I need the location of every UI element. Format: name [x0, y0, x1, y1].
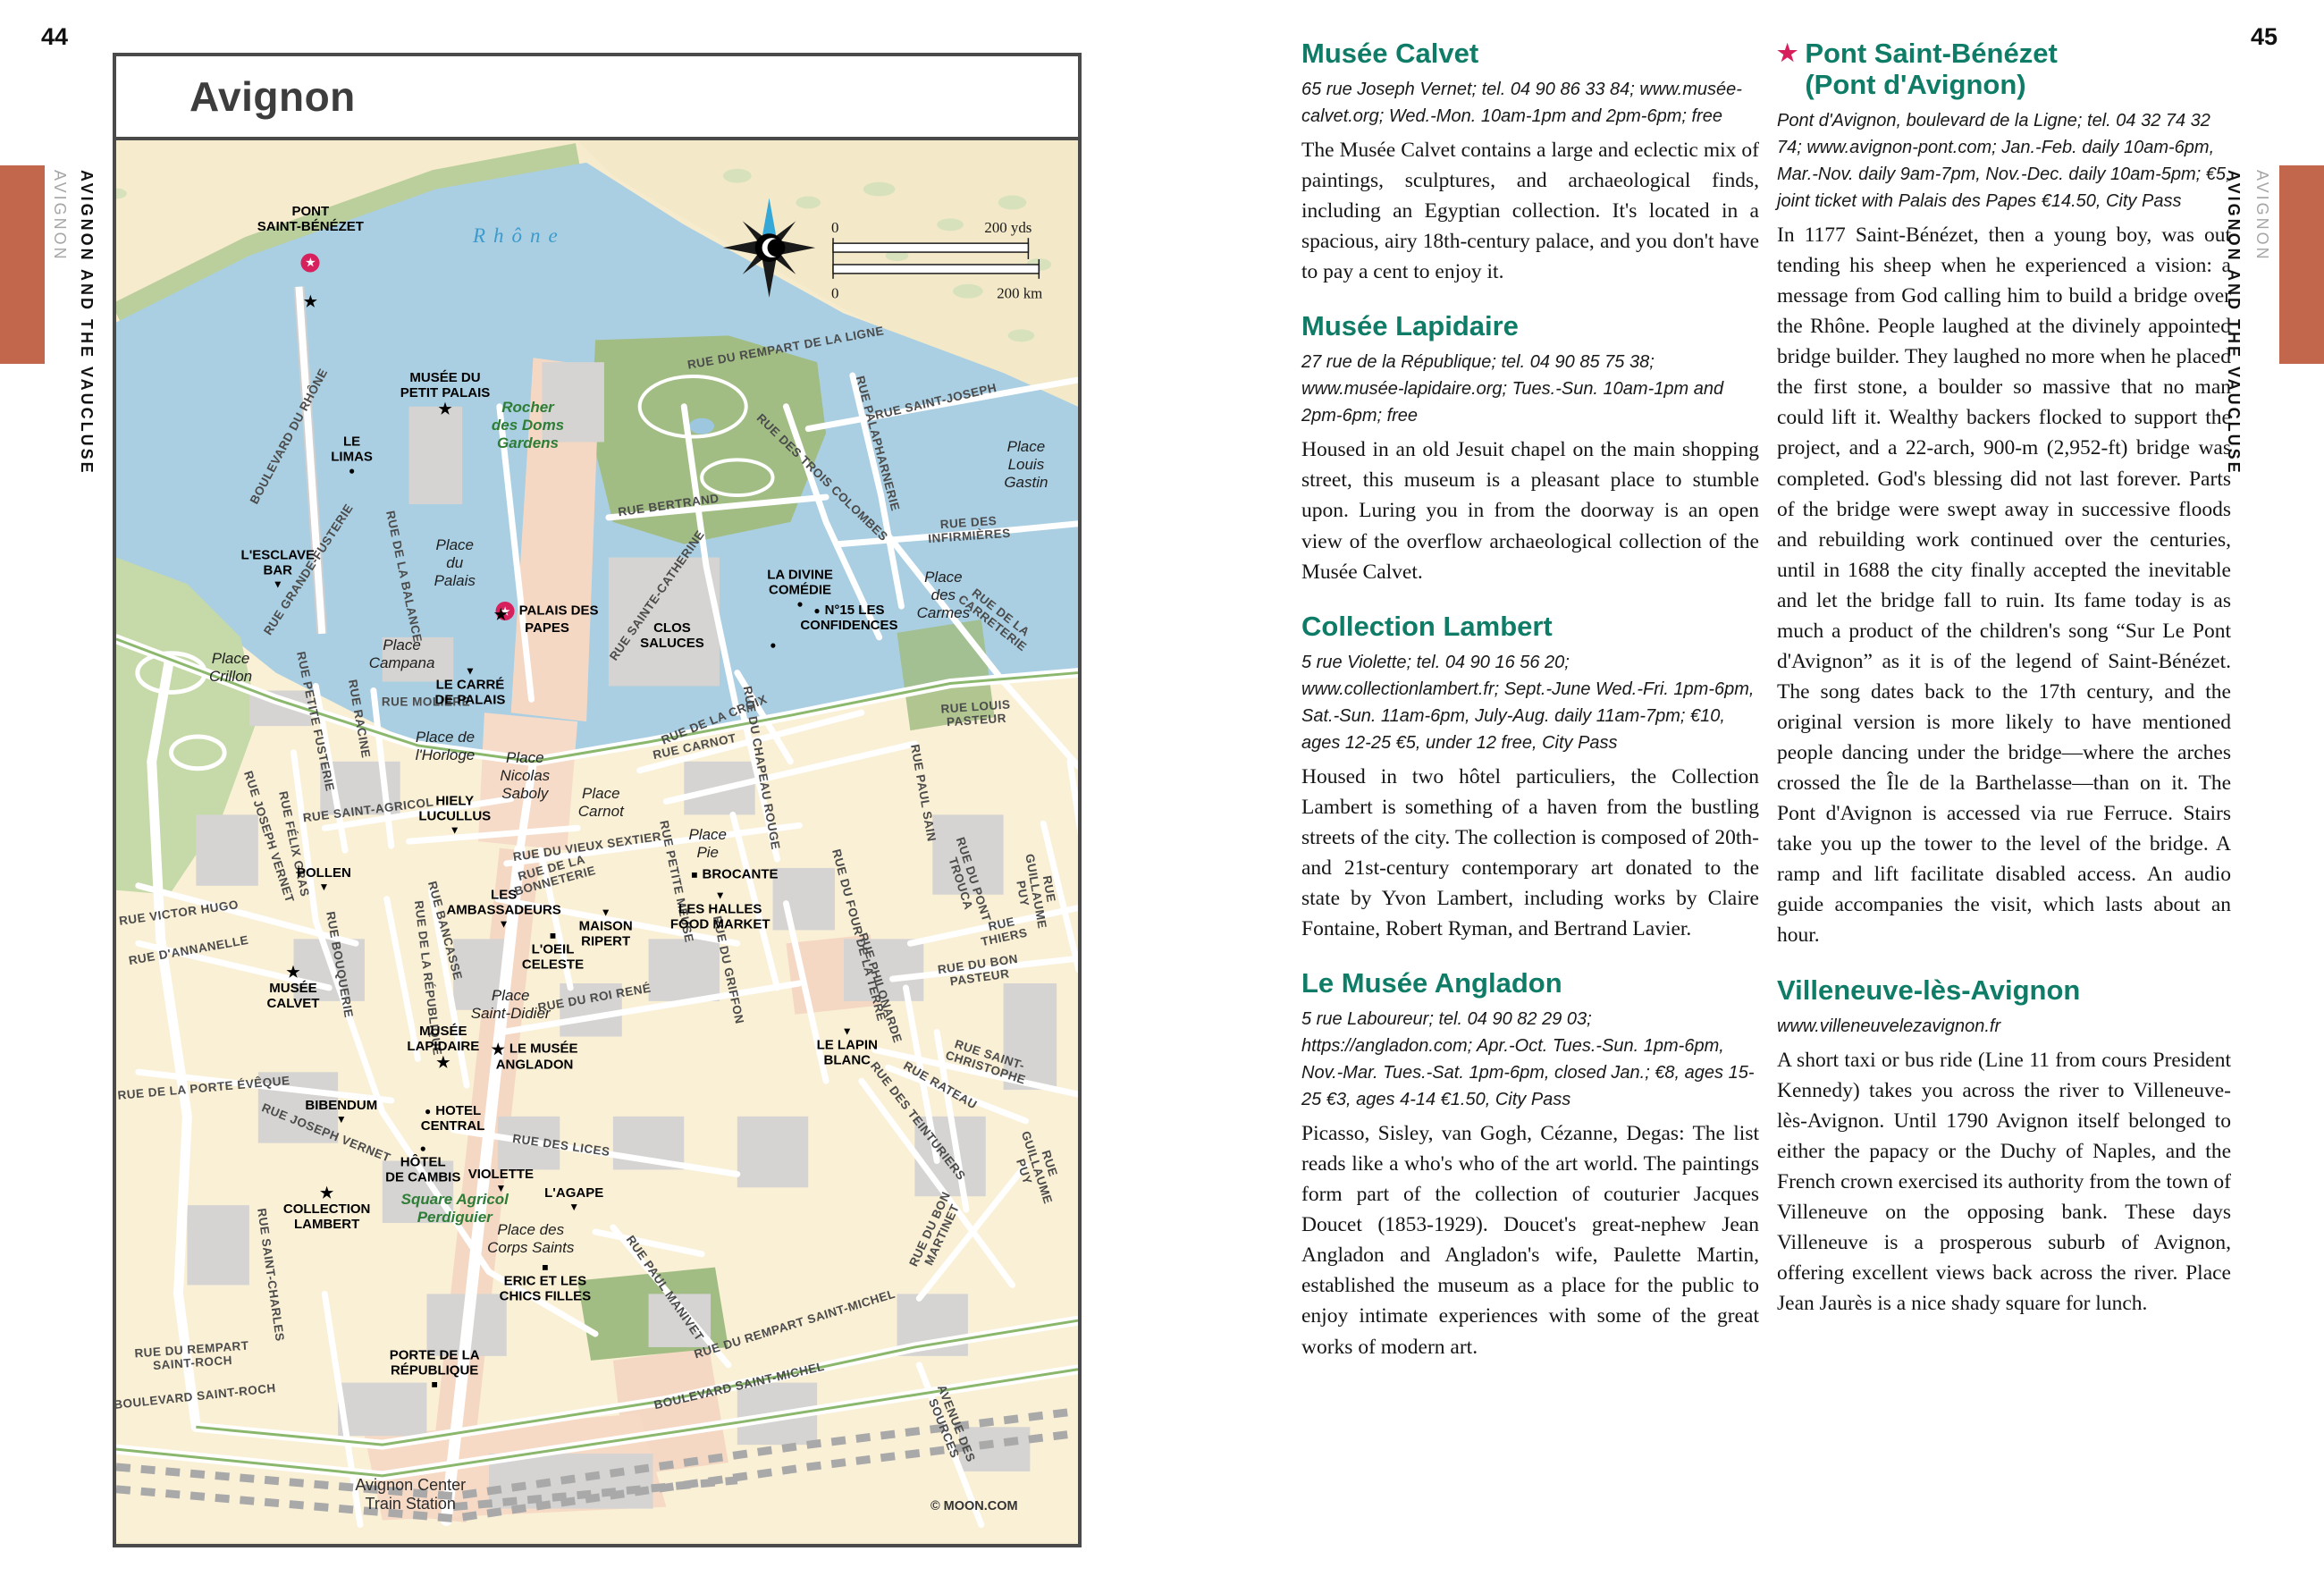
map-label-place: Place Crillon	[209, 650, 252, 686]
map-label-place: Place des Corps Saints	[487, 1221, 574, 1257]
article-title: Musée Lapidaire	[1301, 310, 1519, 341]
article-info-line: www.villeneuvelezavignon.fr	[1777, 1013, 2231, 1040]
map-label-poi: VIOLETTE▼	[468, 1167, 534, 1193]
map-marker: ★	[301, 253, 320, 272]
tri-marker-icon: ▼	[544, 1201, 603, 1212]
map-label-place: Place Saint-Didier	[471, 987, 551, 1023]
book-spread: 44 45 AVIGNON AVIGNON AND THE VAUCLUSE A…	[0, 0, 2324, 1585]
map-label-street: RUE BOUQUERIE	[324, 910, 356, 1018]
map-label-street: RUE PETITE FUSTERIE	[294, 650, 337, 792]
star-marker-icon: ★	[304, 294, 317, 309]
map-label-street: RUE DE LA BALANCE	[383, 510, 425, 644]
map-label-poi: L'AGAPE▼	[544, 1185, 603, 1212]
map-label-street: RUE PAUL MANIVET	[624, 1233, 707, 1344]
tri-marker-icon: ▼	[297, 881, 351, 892]
dot-marker-icon: ●	[770, 639, 776, 650]
tri-marker-icon: ▼	[418, 824, 491, 835]
article-body: Housed in an old Jesuit chapel on the ma…	[1301, 434, 1759, 586]
article-heading: ★ Villeneuve-lès-Avignon	[1777, 974, 2231, 1006]
map-marker: ★	[304, 294, 317, 310]
map-marker: ●	[770, 637, 776, 652]
map-label-place: Place Louis Gastin	[1004, 438, 1048, 492]
map-label-station: Avignon Center Train Station	[355, 1476, 466, 1513]
map-label-poi: ▼LE CARRÉ DE PALAIS	[435, 665, 506, 707]
map-label-street: RUE DU ROI RENÉ	[536, 982, 652, 1015]
map-label-poi: ■ERIC ET LES CHICS FILLES	[500, 1261, 592, 1303]
article-body: The Musée Calvet contains a large and ec…	[1301, 135, 1759, 287]
top-sight-star-icon: ★	[301, 253, 320, 272]
tri-marker-icon: ▼	[468, 1183, 534, 1193]
sidebar-subtitle-right: AVIGNON	[2252, 170, 2271, 262]
article-info-line: 5 rue Laboureur; tel. 04 90 82 29 03; ht…	[1301, 1006, 1759, 1113]
article-section: ★ Musée Lapidaire 27 rue de la Républiqu…	[1301, 310, 1759, 586]
map-label-poi: ●HÔTEL DE CAMBIS	[385, 1142, 460, 1185]
sq-marker-icon: ■	[500, 1261, 592, 1272]
dot-marker-icon: ●	[425, 1106, 431, 1117]
sq-marker-icon: ■	[390, 1378, 480, 1389]
article-section: ★ Pont Saint-Bénézet (Pont d'Avignon) Po…	[1777, 38, 2231, 951]
star-marker-icon: ★	[283, 1185, 371, 1201]
chapter-tab-right	[2279, 165, 2324, 364]
tri-marker-icon: ▼	[241, 578, 315, 589]
map-label-street: RUE RACINE	[346, 679, 373, 759]
tri-marker-icon: ▼	[817, 1026, 878, 1037]
map-label-poi: LES AMBASSADEURS▼	[446, 887, 560, 929]
map-label-poi: PONT SAINT-BÉNÉZET	[257, 204, 364, 234]
map-label-poi: ▼MAISON RIPERT	[579, 906, 633, 948]
map-label-street: RUE SAINT-CHRISTOPHE	[940, 1034, 1034, 1088]
map-label-poi: ▼LES HALLES FOOD MARKET	[670, 889, 770, 932]
star-marker-icon: ★	[267, 965, 320, 980]
map-label-place: Place Pie	[688, 826, 727, 862]
map-title: Avignon	[116, 72, 356, 121]
article-info-line: 5 rue Violette; tel. 04 90 16 56 20; www…	[1301, 649, 1759, 756]
map-label-street: RUE BERTRAND	[617, 492, 720, 519]
map-label-street: RUE SAINT-AGRICOL	[302, 795, 434, 824]
star-marker-icon: ★	[407, 1055, 479, 1070]
article-heading: ★ Musée Lapidaire	[1301, 310, 1759, 341]
map-label-street: RUE DES LICES	[512, 1132, 611, 1159]
map-label-street: RUE PAUL SAIN	[908, 743, 939, 842]
article-body: A short taxi or bus ride (Line 11 from c…	[1777, 1045, 2231, 1319]
map-label-street: RUE VICTOR HUGO	[118, 898, 240, 928]
article-heading: ★ Collection Lambert	[1301, 611, 1759, 642]
map-label-place: Place du Palais	[434, 536, 476, 590]
map-label-poi: ★COLLECTION LAMBERT	[283, 1185, 371, 1232]
article-section: ★ Le Musée Angladon 5 rue Laboureur; tel…	[1301, 967, 1759, 1362]
map-label-place: Place Campana	[369, 637, 435, 672]
sidebar-title-left: AVIGNON AND THE VAUCLUSE	[77, 170, 96, 476]
map-label-street: RUE DU REMPART SAINT-ROCH	[134, 1338, 250, 1373]
sidebar-subtitle-left: AVIGNON	[50, 170, 69, 262]
article-section: ★ Collection Lambert 5 rue Violette; tel…	[1301, 611, 1759, 944]
map-label-poi: PORTE DE LA RÉPUBLIQUE■	[390, 1347, 480, 1389]
map-marker: ★	[494, 607, 508, 623]
map-label-street: RUE SAINT-CHARLES	[255, 1207, 287, 1342]
map-label-place: Place des Carmes	[917, 569, 971, 622]
map-label-street: AVENUE DES SOURCES	[914, 1362, 986, 1490]
map-label-place: Place Carnot	[578, 785, 624, 821]
page-number-left: 44	[41, 23, 68, 51]
article-heading: ★ Musée Calvet	[1301, 38, 1759, 69]
article-body: In 1177 Saint-Bénézet, then a young boy,…	[1777, 220, 2231, 951]
article-section: ★ Villeneuve-lès-Avignon www.villeneuvel…	[1777, 974, 2231, 1319]
article-title: Le Musée Angladon	[1301, 967, 1562, 999]
map-label-street: RUE DU BON MARTINET	[894, 1162, 978, 1303]
map-label-street: RUE GUILLAUME PUY	[1006, 1126, 1067, 1210]
map-label-street: RUE DU CHAPEAU ROUGE	[740, 685, 782, 850]
chapter-tab-left	[0, 165, 45, 364]
article-title: Musée Calvet	[1301, 38, 1478, 69]
star-icon: ★	[1777, 40, 1798, 66]
map-label-street: RUE DE LA PORTE ÉVÊQUE	[117, 1074, 290, 1102]
tri-marker-icon: ▼	[305, 1114, 377, 1125]
map-label-poi: MUSÉE LAPIDAIRE★	[407, 1024, 479, 1070]
map-label-poi: ■L'OEIL CELESTE	[522, 931, 584, 973]
map-label-poi: ★LE MUSÉE ANGLADON	[492, 1041, 578, 1073]
map-label-street: RUE D'ANNANELLE	[127, 933, 249, 967]
article-info-line: 27 rue de la République; tel. 04 90 85 7…	[1301, 349, 1759, 429]
map-label-water: Rhône	[473, 224, 566, 248]
map-label-poi: CLOS SALUCES	[640, 620, 704, 651]
dot-marker-icon: ●	[385, 1142, 460, 1153]
map-label-place: Place Nicolas Saboly	[500, 749, 550, 803]
map-label-street: RUE DU REMPART SAINT-MICHEL	[692, 1286, 897, 1361]
tri-marker-icon: ▼	[670, 889, 770, 900]
sq-marker-icon: ■	[522, 931, 584, 941]
dot-marker-icon: ●	[813, 605, 820, 616]
map-label-park: Square Agricol Perdiguier	[401, 1191, 509, 1227]
article-body: Housed in two hôtel particuliers, the Co…	[1301, 762, 1759, 944]
map-canvas: 0 200 yds 0 200 km PONT SAINT-BÉNÉZET★★R…	[116, 140, 1078, 1544]
article-column-2: ★ Pont Saint-Bénézet (Pont d'Avignon) Po…	[1777, 38, 2231, 1342]
map-label-poi: ●N°15 LES CONFIDENCES	[800, 603, 897, 633]
map-label-street: RUE LOUIS PASTEUR	[924, 696, 1028, 730]
map-label-credit: © MOON.COM	[930, 1499, 1018, 1513]
map-label-street: BOULEVARD SAINT-ROCH	[114, 1381, 277, 1412]
article-title: Villeneuve-lès-Avignon	[1777, 974, 2080, 1006]
article-heading: ★ Pont Saint-Bénézet (Pont d'Avignon)	[1777, 38, 2231, 100]
article-column-1: ★ Musée Calvet 65 rue Joseph Vernet; tel…	[1301, 38, 1759, 1386]
article-title: Pont Saint-Bénézet (Pont d'Avignon)	[1805, 38, 2057, 100]
page-number-right: 45	[2251, 23, 2278, 51]
map-label-poi: L'ESCLAVE BAR▼	[241, 547, 315, 589]
map-label-place: Place de l'Horloge	[416, 729, 476, 764]
map-label-street: BOULEVARD DU RHÔNE	[247, 367, 330, 506]
map-label-street: RUE DU BON PASTEUR	[928, 951, 1030, 991]
tri-marker-icon: ▼	[435, 665, 506, 676]
map-label-street: RUE DU REMPART DE LA LIGNE	[686, 325, 885, 372]
map-label-poi: ★PALAIS DES PAPES	[496, 602, 599, 636]
sq-marker-icon: ■	[691, 870, 697, 881]
map-label-poi: ●HOTEL CENTRAL	[421, 1103, 485, 1134]
article-title: Collection Lambert	[1301, 611, 1553, 642]
map-label-poi: MUSÉE DU PETIT PALAIS★	[400, 370, 491, 417]
map-label-street: RUE SAINT-JOSEPH	[873, 381, 998, 422]
star-marker-icon: ★	[494, 607, 508, 622]
map-label-poi: HIELY LUCULLUS▼	[418, 793, 491, 835]
map-labels-layer: PONT SAINT-BÉNÉZET★★RhôneBOULEVARD DU RH…	[116, 140, 1078, 1544]
star-marker-icon: ★	[492, 1041, 505, 1057]
map-label-park: Rocher des Doms Gardens	[492, 399, 564, 452]
star-marker-icon: ★	[400, 401, 491, 417]
map-label-street: RUE DES INFIRMIÈRES	[914, 512, 1024, 546]
map-label-poi: ★MUSÉE CALVET	[267, 965, 320, 1011]
map-label-poi: POLLEN▼	[297, 865, 351, 892]
article-section: ★ Musée Calvet 65 rue Joseph Vernet; tel…	[1301, 38, 1759, 287]
tri-marker-icon: ▼	[579, 906, 633, 917]
article-body: Picasso, Sisley, van Gogh, Cézanne, Dega…	[1301, 1118, 1759, 1362]
map-label-poi: ■BROCANTE	[691, 867, 778, 882]
map-label-poi: LE LIMAS●	[331, 434, 373, 476]
article-info-line: Pont d'Avignon, boulevard de la Ligne; t…	[1777, 107, 2231, 215]
article-info-line: 65 rue Joseph Vernet; tel. 04 90 86 33 8…	[1301, 76, 1759, 130]
tri-marker-icon: ▼	[446, 918, 560, 929]
map-title-bar: Avignon	[116, 56, 1078, 140]
map-label-poi: BIBENDUM▼	[305, 1098, 377, 1125]
map-label-poi: ▼LE LAPIN BLANC	[817, 1026, 878, 1068]
avignon-city-map: Avignon	[113, 53, 1082, 1547]
map-label-street: RUE PALAPHARNERIE	[854, 375, 903, 513]
dot-marker-icon: ●	[331, 465, 373, 476]
article-heading: ★ Le Musée Angladon	[1301, 967, 1759, 999]
map-label-street: BOULEVARD SAINT-MICHEL	[653, 1359, 826, 1412]
